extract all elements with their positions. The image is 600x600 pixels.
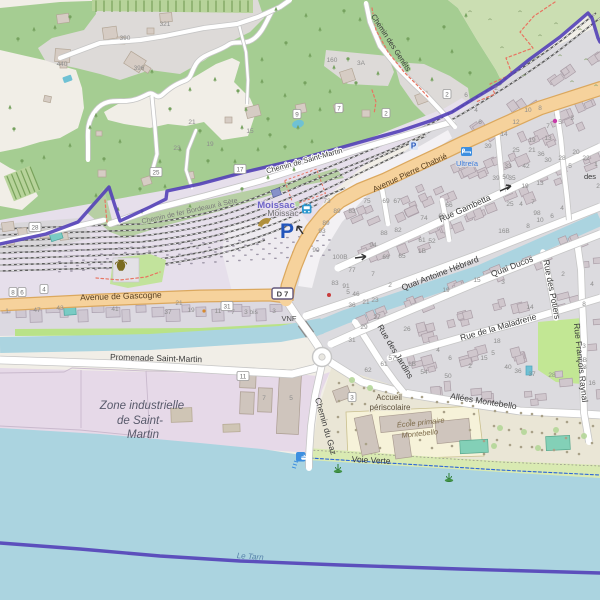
- svg-text:21: 21: [362, 299, 370, 306]
- svg-text:8: 8: [582, 301, 586, 308]
- svg-text:35: 35: [508, 175, 516, 182]
- svg-text:89: 89: [322, 220, 330, 227]
- svg-text:31: 31: [223, 304, 231, 311]
- svg-text:1B: 1B: [408, 361, 416, 368]
- svg-text:15: 15: [246, 128, 254, 135]
- svg-text:26: 26: [403, 326, 411, 333]
- svg-text:33: 33: [504, 163, 512, 170]
- svg-text:94: 94: [369, 242, 377, 249]
- svg-text:1B: 1B: [418, 248, 426, 255]
- svg-text:69: 69: [382, 254, 390, 261]
- svg-text:D 7: D 7: [277, 290, 289, 299]
- svg-text:28: 28: [31, 225, 39, 232]
- svg-text:périscolaire: périscolaire: [370, 403, 411, 412]
- svg-text:42: 42: [522, 163, 530, 170]
- svg-text:3: 3: [570, 115, 574, 122]
- svg-text:37: 37: [528, 371, 536, 378]
- svg-text:5: 5: [289, 395, 293, 402]
- svg-text:de Saint-: de Saint-: [117, 415, 163, 427]
- svg-text:3: 3: [501, 279, 505, 286]
- svg-text:77: 77: [348, 267, 356, 274]
- svg-text:39: 39: [484, 143, 492, 150]
- svg-text:390: 390: [120, 35, 131, 42]
- svg-text:74: 74: [420, 215, 428, 222]
- svg-text:83: 83: [348, 208, 356, 215]
- svg-text:3: 3: [582, 343, 586, 350]
- svg-text:98: 98: [533, 210, 541, 217]
- svg-text:11: 11: [240, 374, 247, 381]
- svg-text:5: 5: [491, 350, 495, 357]
- svg-text:14: 14: [500, 131, 508, 138]
- svg-text:82: 82: [394, 227, 402, 234]
- svg-text:5: 5: [558, 119, 562, 126]
- svg-text:Accueil: Accueil: [376, 393, 402, 402]
- svg-text:31: 31: [348, 337, 356, 344]
- svg-text:52: 52: [428, 238, 436, 245]
- svg-text:440: 440: [57, 61, 68, 68]
- svg-text:57: 57: [388, 355, 396, 362]
- svg-text:62: 62: [438, 213, 446, 220]
- svg-text:7: 7: [262, 395, 266, 402]
- svg-text:12: 12: [512, 119, 520, 126]
- svg-text:VNF: VNF: [282, 314, 297, 323]
- svg-text:16: 16: [588, 380, 596, 387]
- svg-text:5: 5: [568, 163, 572, 170]
- svg-text:18: 18: [493, 338, 501, 345]
- svg-text:50: 50: [444, 373, 452, 380]
- svg-text:15: 15: [473, 277, 481, 284]
- svg-text:Moissac: Moissac: [267, 208, 299, 218]
- svg-text:3: 3: [350, 395, 354, 402]
- svg-text:2: 2: [445, 92, 449, 99]
- svg-text:30: 30: [544, 157, 552, 164]
- svg-text:37: 37: [164, 309, 172, 316]
- svg-text:4: 4: [474, 107, 478, 114]
- svg-text:Le Tarn: Le Tarn: [236, 551, 264, 562]
- svg-text:4: 4: [42, 287, 46, 294]
- svg-text:43: 43: [56, 305, 64, 312]
- svg-text:6: 6: [20, 290, 24, 297]
- svg-text:19: 19: [442, 287, 450, 294]
- svg-text:13: 13: [544, 135, 552, 142]
- svg-text:2: 2: [494, 85, 498, 92]
- svg-text:7: 7: [337, 106, 341, 113]
- svg-text:15: 15: [480, 355, 488, 362]
- svg-text:5: 5: [346, 289, 350, 296]
- svg-text:91: 91: [342, 283, 350, 290]
- svg-text:61: 61: [418, 237, 426, 244]
- svg-text:8: 8: [526, 223, 530, 230]
- svg-text:des: des: [584, 172, 596, 181]
- svg-text:19: 19: [187, 307, 195, 314]
- svg-text:93: 93: [318, 228, 326, 235]
- svg-text:160: 160: [327, 57, 338, 64]
- svg-text:83: 83: [331, 280, 339, 287]
- svg-text:10: 10: [536, 217, 544, 224]
- svg-text:1: 1: [594, 161, 598, 168]
- svg-text:7: 7: [531, 199, 535, 206]
- svg-text:67: 67: [393, 198, 401, 205]
- svg-text:1: 1: [5, 308, 9, 315]
- svg-text:20: 20: [572, 149, 580, 156]
- svg-text:17: 17: [236, 167, 244, 174]
- svg-text:Martin: Martin: [127, 429, 159, 441]
- svg-text:19: 19: [521, 183, 529, 190]
- svg-text:89: 89: [333, 208, 341, 215]
- svg-text:2: 2: [596, 183, 600, 190]
- svg-text:47: 47: [33, 307, 41, 314]
- svg-text:25: 25: [506, 201, 514, 208]
- svg-text:25: 25: [512, 147, 520, 154]
- svg-text:22: 22: [582, 155, 590, 162]
- svg-text:Voie Verte: Voie Verte: [352, 454, 391, 466]
- svg-text:10: 10: [524, 107, 532, 114]
- svg-text:4: 4: [590, 281, 594, 288]
- svg-text:21: 21: [175, 300, 183, 307]
- svg-text:27: 27: [373, 314, 381, 321]
- svg-text:54: 54: [420, 369, 428, 376]
- svg-text:3 bis: 3 bis: [244, 309, 258, 316]
- svg-text:4: 4: [560, 205, 564, 212]
- svg-text:3B: 3B: [579, 357, 587, 364]
- svg-text:6: 6: [550, 213, 554, 220]
- svg-text:19: 19: [206, 141, 214, 148]
- svg-text:23: 23: [371, 297, 379, 304]
- svg-text:46: 46: [352, 291, 360, 298]
- svg-text:99: 99: [312, 247, 320, 254]
- svg-text:2: 2: [468, 363, 472, 370]
- svg-text:8: 8: [538, 105, 542, 112]
- svg-text:28: 28: [558, 155, 566, 162]
- svg-text:88: 88: [380, 230, 388, 237]
- svg-text:21: 21: [188, 119, 196, 126]
- svg-text:16B: 16B: [498, 228, 510, 235]
- svg-text:28: 28: [579, 364, 587, 371]
- svg-text:7: 7: [371, 271, 375, 278]
- svg-text:75: 75: [363, 198, 371, 205]
- svg-text:2: 2: [384, 111, 388, 118]
- svg-text:3A: 3A: [357, 60, 366, 67]
- svg-text:28: 28: [548, 372, 556, 379]
- svg-text:23: 23: [173, 145, 181, 152]
- svg-text:4: 4: [519, 201, 523, 208]
- svg-text:100B: 100B: [332, 254, 347, 261]
- svg-text:3: 3: [272, 308, 276, 315]
- svg-text:65: 65: [398, 253, 406, 260]
- svg-text:25: 25: [152, 170, 160, 177]
- svg-text:41: 41: [111, 306, 119, 313]
- svg-text:Zone industrielle: Zone industrielle: [99, 400, 184, 412]
- svg-text:6: 6: [464, 92, 468, 99]
- svg-text:396: 396: [134, 65, 145, 72]
- svg-text:69: 69: [382, 198, 390, 205]
- svg-text:6: 6: [478, 119, 482, 126]
- svg-text:2: 2: [561, 271, 565, 278]
- svg-text:9: 9: [295, 112, 299, 119]
- svg-text:Ultreïa: Ultreïa: [456, 159, 479, 168]
- svg-text:29: 29: [360, 324, 368, 331]
- svg-text:321: 321: [160, 21, 171, 28]
- svg-text:36: 36: [348, 302, 356, 309]
- svg-text:39: 39: [492, 175, 500, 182]
- svg-text:7: 7: [546, 123, 550, 130]
- svg-text:21: 21: [528, 147, 536, 154]
- svg-text:14: 14: [526, 304, 534, 311]
- svg-text:40: 40: [504, 364, 512, 371]
- svg-text:4: 4: [436, 347, 440, 354]
- svg-text:19: 19: [528, 137, 536, 144]
- svg-text:P: P: [280, 220, 294, 243]
- svg-text:8: 8: [11, 290, 15, 297]
- svg-text:73: 73: [323, 198, 331, 205]
- svg-text:62: 62: [364, 367, 372, 374]
- svg-text:13: 13: [536, 180, 544, 187]
- svg-text:P: P: [411, 142, 417, 151]
- svg-text:6: 6: [448, 355, 452, 362]
- svg-text:2: 2: [388, 282, 392, 289]
- svg-text:36: 36: [514, 368, 522, 375]
- svg-text:66: 66: [445, 202, 453, 209]
- svg-text:61: 61: [380, 361, 388, 368]
